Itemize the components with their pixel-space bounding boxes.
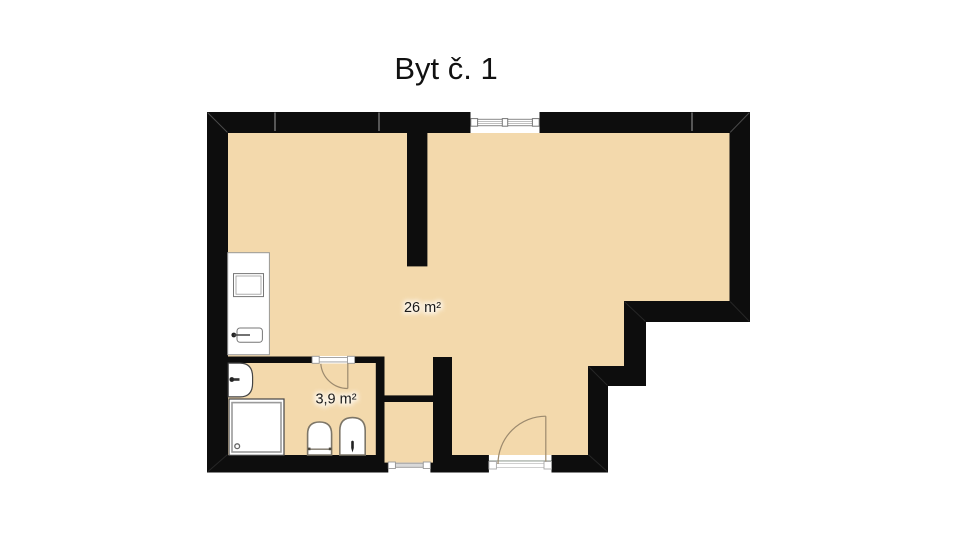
svg-text:3,9 m²: 3,9 m² bbox=[315, 392, 356, 408]
svg-text:Byt č. 1: Byt č. 1 bbox=[394, 51, 497, 86]
svg-text:26 m²: 26 m² bbox=[404, 300, 441, 316]
